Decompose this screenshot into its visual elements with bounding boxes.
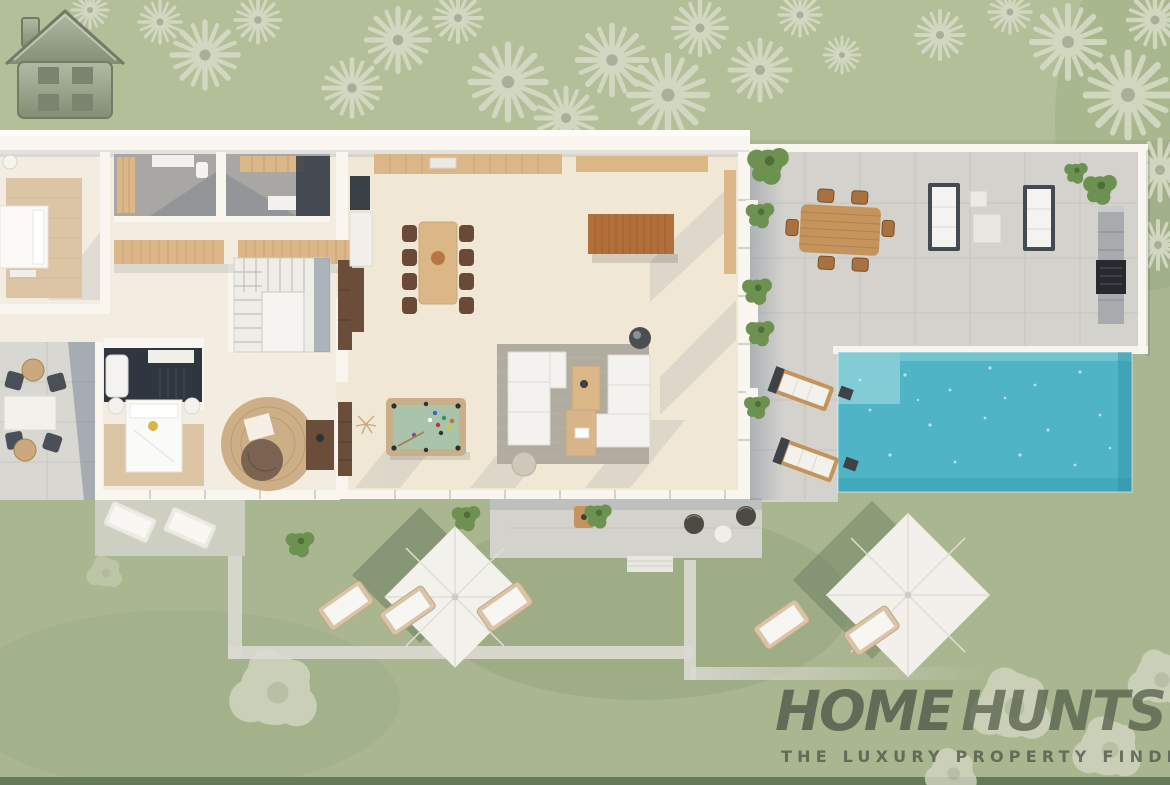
- wicker-chair: [684, 514, 704, 534]
- pouf: [512, 452, 536, 476]
- round-chair: [241, 439, 283, 481]
- kitchen-counter-north: [374, 154, 562, 174]
- kitchen-cabinet: [350, 268, 364, 332]
- fridge: [350, 176, 370, 210]
- floor-lamp: [629, 327, 651, 349]
- palm-tree-icon: [1032, 6, 1104, 78]
- wardrobe: [240, 156, 304, 172]
- bed: [126, 400, 182, 472]
- bedroom-lamp: [3, 155, 17, 169]
- kitchen-sink: [430, 158, 456, 168]
- terrace-north-wall: [750, 144, 1148, 152]
- palm-tree-icon: [367, 9, 430, 72]
- terrace-steps: [627, 556, 673, 572]
- sideboard: [576, 156, 708, 172]
- bathtub: [106, 355, 128, 397]
- nightstand: [184, 398, 200, 414]
- stair-shelf: [338, 260, 352, 350]
- bathroom-1: [114, 154, 216, 216]
- centerpiece: [431, 251, 445, 265]
- master-bed: [0, 206, 48, 277]
- patio-table: [4, 396, 56, 430]
- hedge-line: [0, 777, 1170, 785]
- bath-bench: [148, 350, 194, 363]
- kitchen-counter-west: [350, 212, 372, 266]
- palm-tree-icon: [629, 56, 707, 134]
- living-area: [497, 327, 651, 476]
- tall-cabinet: [338, 402, 352, 476]
- round-table: [714, 525, 732, 543]
- palm-tree-icon: [916, 11, 964, 59]
- sink: [268, 196, 296, 210]
- side-table: [970, 191, 987, 207]
- palm-tree-icon: [139, 1, 181, 43]
- bedroom-2: [104, 398, 204, 486]
- grill: [1096, 260, 1126, 294]
- coffee-table: [572, 366, 600, 410]
- palm-tree-icon: [824, 37, 860, 73]
- glass-wall-south: [95, 490, 750, 499]
- palm-tree-icon: [989, 0, 1031, 33]
- wicker-chair: [736, 506, 756, 526]
- kitchen-island: [588, 214, 678, 263]
- double-sink: [152, 155, 194, 167]
- palm-tree-icon: [72, 0, 108, 28]
- nightstand: [108, 398, 124, 414]
- palm-tree-icon: [471, 45, 546, 120]
- shower: [296, 156, 330, 216]
- accent-pillow: [148, 421, 158, 431]
- bathroom-2: [226, 154, 330, 216]
- desk: [306, 420, 334, 470]
- wall-paneling: [724, 170, 736, 274]
- west-patio: [0, 342, 95, 500]
- ensuite-bathroom: [104, 348, 202, 402]
- palm-tree-icon: [324, 60, 381, 117]
- side-table: [973, 214, 1001, 243]
- wardrobe: [117, 157, 135, 213]
- pouf: [22, 359, 44, 381]
- stair-landing: [262, 292, 304, 352]
- swimming-pool: [833, 346, 1148, 492]
- palm-tree-icon: [673, 1, 727, 55]
- books: [575, 428, 589, 438]
- floorplan-render: HOMEHUNTS THE LUXURY PROPERTY FINDERS: [0, 0, 1170, 785]
- palm-tree-icon: [172, 22, 238, 88]
- palm-tree-icon: [236, 0, 281, 43]
- palm-tree-icon: [1086, 53, 1170, 137]
- floorplan-canvas: [0, 0, 1170, 785]
- pouf: [14, 439, 36, 461]
- palm-tree-icon: [730, 40, 790, 100]
- toilet: [196, 162, 208, 178]
